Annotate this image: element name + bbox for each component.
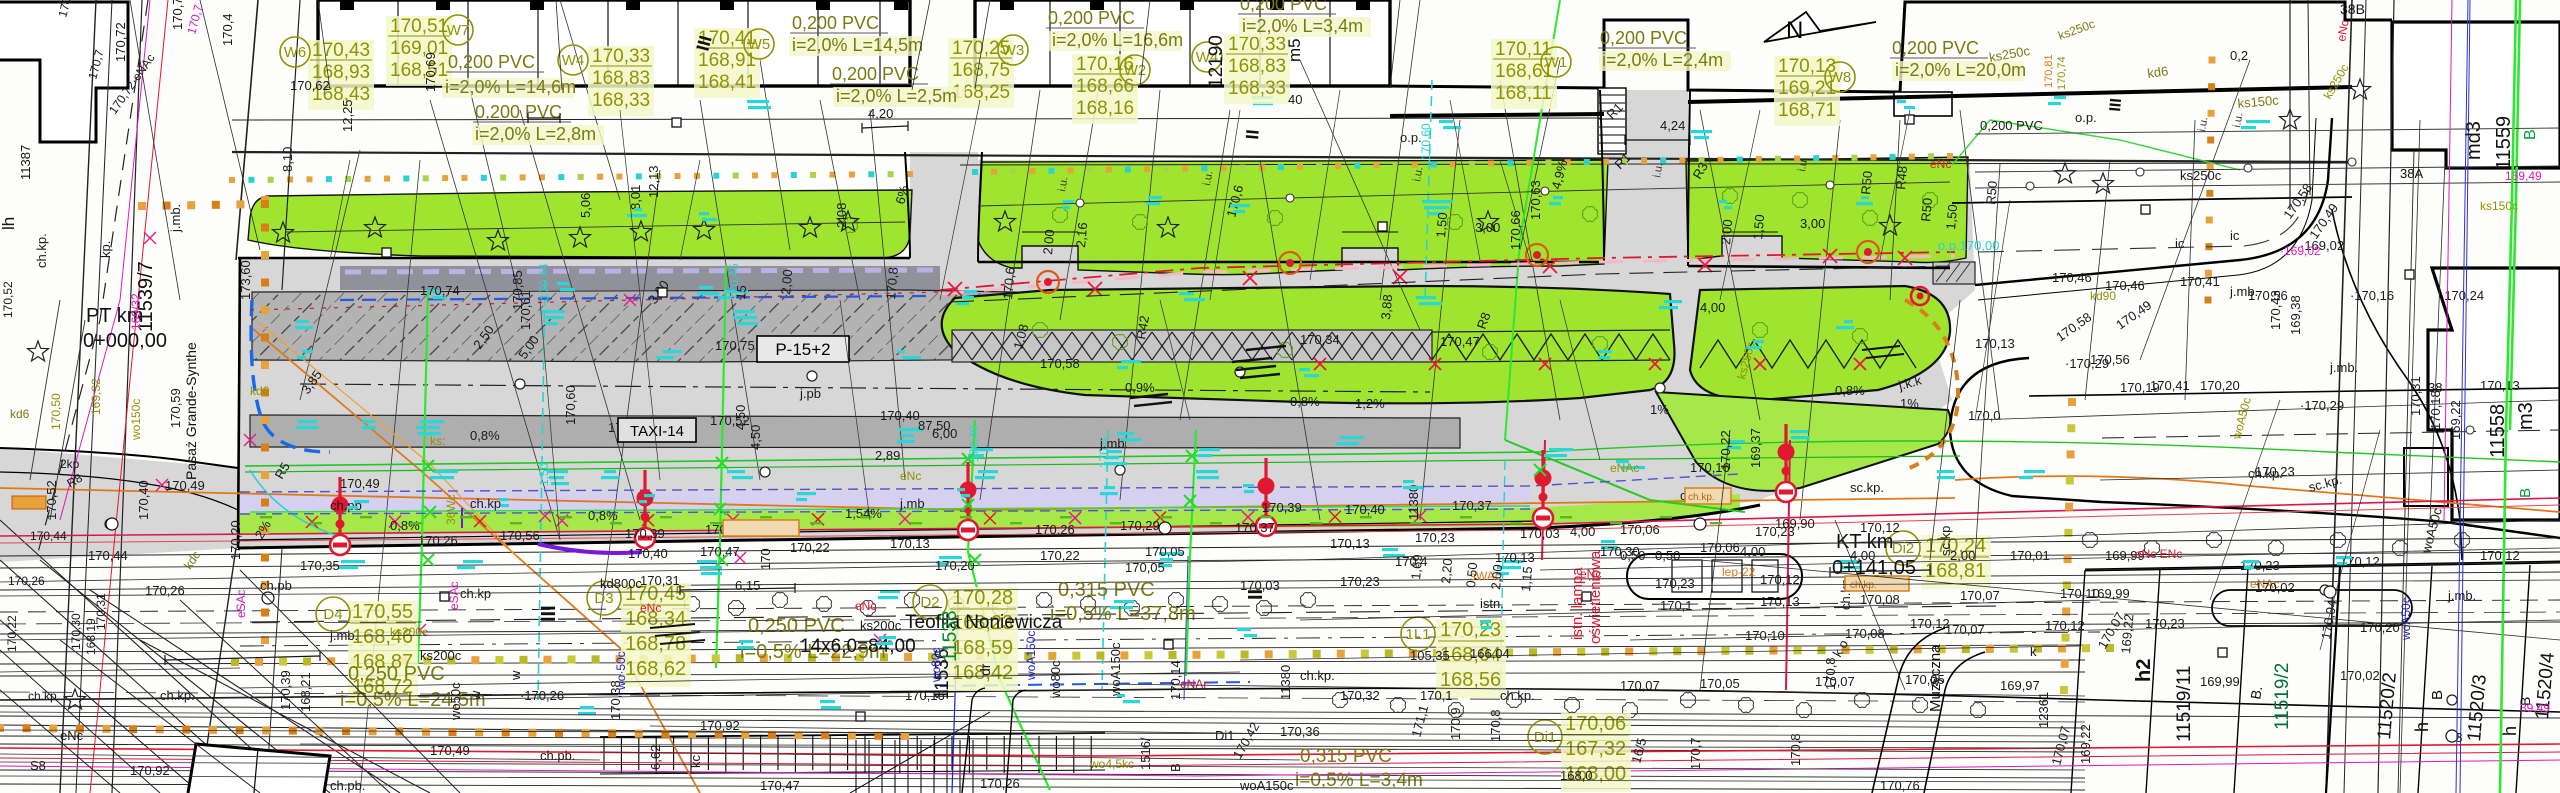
- svg-text:168,75: 168,75: [952, 60, 1010, 81]
- svg-text:eNc: eNc: [640, 601, 661, 615]
- svg-text:2,00: 2,00: [1040, 229, 1057, 256]
- svg-text:0,200 PVC: 0,200 PVC: [832, 64, 919, 84]
- svg-text:170,37: 170,37: [1235, 520, 1275, 535]
- svg-text:170,06: 170,06: [1565, 713, 1626, 735]
- svg-text:S8: S8: [30, 758, 46, 773]
- svg-text:h2: h2: [2133, 659, 2155, 682]
- svg-text:170,13: 170,13: [1330, 536, 1370, 551]
- svg-text:170,44: 170,44: [537, 263, 551, 300]
- svg-text:ch.kp: ch.kp: [460, 586, 491, 601]
- svg-text:Teofila Noniewicza: Teofila Noniewicza: [905, 612, 1063, 633]
- svg-text:169,99: 169,99: [2090, 586, 2130, 601]
- svg-text:170,63: 170,63: [1528, 180, 1543, 220]
- svg-text:kd6: kd6: [2146, 63, 2169, 81]
- svg-text:i=2,0% L=2,8m: i=2,0% L=2,8m: [475, 124, 596, 144]
- svg-text:0,200 PVC: 0,200 PVC: [448, 52, 535, 72]
- svg-text:II: II: [1242, 129, 1263, 141]
- svg-text:wo150c: wo150c: [129, 399, 143, 441]
- svg-text:B: B: [2517, 488, 2534, 498]
- svg-text:170,9: 170,9: [1448, 707, 1463, 740]
- svg-text:woA150c: woA150c: [1024, 631, 1038, 681]
- svg-text:0,200 PVC: 0,200 PVC: [1600, 28, 1687, 48]
- svg-text:170,49: 170,49: [430, 743, 470, 758]
- svg-text:·170,29: ·170,29: [2300, 398, 2344, 413]
- svg-text:h: h: [2500, 726, 2520, 736]
- svg-text:170,05: 170,05: [1145, 544, 1185, 559]
- svg-text:0,50: 0,50: [1620, 548, 1645, 563]
- svg-text:170,69: 170,69: [423, 52, 438, 92]
- svg-text:i=2,0% L=14,5m: i=2,0% L=14,5m: [792, 35, 923, 55]
- svg-text:i=2,0% L=14,6m: i=2,0% L=14,6m: [445, 77, 576, 97]
- svg-text:·170,29: ·170,29: [2065, 356, 2109, 371]
- svg-text:woA150c: woA150c: [1108, 642, 1123, 697]
- svg-text:170,31: 170,31: [640, 573, 680, 588]
- svg-text:kc: kc: [688, 755, 703, 769]
- svg-text:Pasaż Grande-Synthe: Pasaż Grande-Synthe: [183, 342, 199, 480]
- svg-text:170,32: 170,32: [1340, 688, 1380, 703]
- svg-text:170,26: 170,26: [980, 776, 1020, 791]
- svg-text:j.mb: j.mb: [899, 496, 925, 511]
- svg-text:170,23: 170,23: [1440, 619, 1501, 641]
- svg-text:169,38: 169,38: [2288, 295, 2303, 335]
- svg-text:Di2: Di2: [1892, 540, 1915, 557]
- svg-text:170,43: 170,43: [312, 40, 370, 61]
- svg-text:ks:: ks:: [430, 434, 445, 448]
- svg-text:170,39: 170,39: [625, 526, 665, 541]
- svg-text:170,40: 170,40: [880, 408, 920, 423]
- svg-text:i.u.: i.u.: [1651, 162, 1665, 179]
- svg-text:168,83: 168,83: [1228, 56, 1286, 77]
- svg-text:170,39: 170,39: [1262, 500, 1302, 515]
- svg-text:i.u.: i.u.: [2231, 112, 2245, 129]
- svg-text:ch.pb.: ch.pb.: [330, 778, 365, 793]
- svg-text:170,23: 170,23: [1655, 576, 1695, 591]
- svg-text:4,50: 4,50: [748, 425, 763, 450]
- svg-text:170,44: 170,44: [30, 529, 67, 543]
- svg-text:ch.pb: ch.pb: [260, 578, 292, 593]
- svg-text:lep-22: lep-22: [1722, 565, 1756, 579]
- svg-text:N: N: [1786, 17, 1803, 44]
- svg-text:wo4,5kc: wo4,5kc: [1089, 757, 1134, 771]
- svg-text:170,16: 170,16: [905, 688, 945, 703]
- svg-text:170,36: 170,36: [1280, 724, 1320, 739]
- svg-text:wo80c: wo80c: [929, 647, 943, 683]
- svg-text:169,99: 169,99: [2200, 674, 2240, 689]
- svg-text:170,12: 170,12: [1860, 520, 1900, 535]
- svg-text:0,9%: 0,9%: [1125, 380, 1155, 395]
- svg-text:k: k: [2030, 644, 2037, 659]
- svg-text:170,01: 170,01: [2010, 548, 2050, 563]
- svg-text:i.u.: i.u.: [1796, 156, 1810, 173]
- svg-text:0,315 PVC: 0,315 PVC: [1300, 746, 1392, 767]
- svg-text:j.mb.: j.mb.: [1099, 436, 1128, 451]
- svg-text:i.u.: i.u.: [1201, 170, 1215, 187]
- svg-text:170,02: 170,02: [2340, 668, 2380, 683]
- svg-text:170,8: 170,8: [883, 267, 901, 301]
- svg-text:169,97: 169,97: [2000, 678, 2040, 693]
- svg-text:ch.kp.: ch.kp.: [1500, 688, 1535, 703]
- svg-text:o.p.: o.p.: [2075, 110, 2097, 125]
- svg-text:168,91: 168,91: [698, 50, 756, 71]
- svg-text:170,37: 170,37: [1452, 498, 1492, 513]
- svg-text:11519/2: 11519/2: [2272, 663, 2293, 730]
- svg-text:·169,02: ·169,02: [2280, 244, 2321, 258]
- svg-text:170,92: 170,92: [130, 763, 170, 778]
- svg-text:kd6: kd6: [250, 384, 270, 398]
- svg-text:III: III: [2107, 98, 2125, 113]
- svg-text:170,41: 170,41: [2180, 274, 2220, 289]
- svg-text:170,85: 170,85: [510, 270, 525, 310]
- svg-text:0,50: 0,50: [1655, 548, 1680, 563]
- svg-text:1,50: 1,50: [1433, 212, 1450, 239]
- svg-text:170,59: 170,59: [168, 388, 183, 428]
- svg-text:12,13: 12,13: [646, 165, 661, 198]
- svg-text:0,250 PVC: 0,250 PVC: [348, 663, 445, 685]
- svg-text:o.p.: o.p.: [1400, 130, 1422, 145]
- svg-text:h: h: [2412, 722, 2432, 732]
- svg-text:168,51: 168,51: [390, 60, 448, 81]
- svg-text:169,32: 169,32: [89, 378, 103, 415]
- svg-text:170,8: 170,8: [1788, 733, 1803, 766]
- svg-text:j.mb.: j.mb.: [168, 204, 183, 233]
- svg-text:0,200 PVC: 0,200 PVC: [1980, 118, 2043, 133]
- svg-text:170,13: 170,13: [1975, 336, 2015, 351]
- svg-text:168,83: 168,83: [592, 68, 650, 89]
- svg-text:0,8%: 0,8%: [588, 508, 618, 523]
- svg-text:ch.kp: ch.kp: [470, 496, 501, 511]
- svg-text:6,62: 6,62: [648, 745, 663, 770]
- svg-text:B: B: [2429, 690, 2446, 700]
- svg-text:170,29: 170,29: [1120, 518, 1160, 533]
- svg-text:ch.kp.: ch.kp.: [1688, 492, 1715, 503]
- svg-text:m3: m3: [2515, 402, 2537, 430]
- svg-text:170,07: 170,07: [1945, 622, 1985, 637]
- svg-text:0,200 PVC: 0,200 PVC: [1892, 38, 1979, 58]
- svg-text:eNc: eNc: [855, 599, 876, 613]
- svg-text:D2: D2: [920, 594, 939, 611]
- svg-text:170,72·: 170,72·: [170, 0, 185, 30]
- svg-text:170,26: 170,26: [8, 574, 45, 588]
- svg-text:m5: m5: [1285, 38, 1304, 62]
- svg-text:170,19: 170,19: [2120, 380, 2160, 395]
- svg-text:R48: R48: [1893, 165, 1910, 190]
- svg-text:i.u.: i.u.: [1411, 166, 1425, 183]
- svg-text:170,26: 170,26: [145, 583, 185, 598]
- svg-text:170,52: 170,52: [1, 281, 15, 318]
- svg-text:eSAc: eSAc: [234, 589, 248, 618]
- svg-text:sc.kp: sc.kp: [1938, 526, 1953, 556]
- svg-text:170,13: 170,13: [890, 536, 930, 551]
- svg-text:eNc: eNc: [1930, 157, 1951, 171]
- svg-text:kd6: kd6: [10, 407, 30, 421]
- svg-text:0,315 PVC: 0,315 PVC: [1058, 579, 1155, 601]
- svg-text:170,40: 170,40: [1345, 502, 1385, 517]
- svg-text:4,00: 4,00: [1570, 524, 1595, 539]
- svg-text:170,74: 170,74: [2056, 56, 2068, 90]
- svg-text:1%: 1%: [1900, 396, 1919, 411]
- svg-text:R50: R50: [1918, 197, 1935, 222]
- svg-text:dr: dr: [977, 663, 993, 676]
- svg-text:0,8%: 0,8%: [390, 518, 420, 533]
- svg-text:12,25: 12,25: [340, 99, 355, 132]
- svg-text:170,60: 170,60: [563, 385, 578, 425]
- svg-text:11519/11: 11519/11: [2174, 666, 2195, 742]
- svg-text:105,35: 105,35: [1410, 648, 1450, 663]
- svg-text:·170,26: ·170,26: [520, 688, 564, 703]
- svg-text:170,7: 170,7: [1688, 737, 1703, 770]
- svg-text:170,8: 170,8: [1823, 657, 1838, 690]
- svg-text:eNc: eNc: [900, 469, 921, 483]
- svg-text:170,47: 170,47: [760, 778, 800, 793]
- svg-text:i=2,0% L=3,4m: i=2,0% L=3,4m: [1242, 16, 1363, 36]
- svg-text:170,56: 170,56: [500, 528, 540, 543]
- svg-text:kd90: kd90: [2090, 289, 2116, 303]
- svg-text:0,250 PVC: 0,250 PVC: [748, 615, 845, 637]
- svg-text:170,1: 170,1: [1420, 688, 1453, 703]
- svg-text:·170,24: ·170,24: [2440, 288, 2484, 303]
- svg-text:ic: ic: [2230, 228, 2240, 243]
- svg-text:168,81: 168,81: [1925, 560, 1986, 582]
- svg-text:1,54%: 1,54%: [845, 506, 882, 521]
- svg-text:170,46: 170,46: [2052, 270, 2092, 285]
- svg-text:i=0,5% L=37,8m: i=0,5% L=37,8m: [1050, 603, 1196, 625]
- svg-text:kd800c: kd800c: [600, 576, 642, 591]
- svg-text:8,10: 8,10: [280, 147, 295, 172]
- svg-text:o.p.170,00: o.p.170,00: [1938, 238, 1999, 253]
- svg-text:170,35: 170,35: [300, 558, 340, 573]
- svg-text:170,23: 170,23: [1755, 524, 1795, 539]
- svg-text:170,22: 170,22: [5, 615, 19, 652]
- svg-text:4,00: 4,00: [1850, 548, 1875, 563]
- svg-text:170,13: 170,13: [1760, 594, 1800, 609]
- svg-text:15: 15: [733, 285, 749, 301]
- svg-text:0,8%: 0,8%: [470, 428, 500, 443]
- svg-text:168,61: 168,61: [1495, 61, 1553, 82]
- svg-text:169,37: 169,37: [1748, 428, 1763, 468]
- svg-text:w: w: [508, 670, 523, 681]
- svg-text:170,56: 170,56: [2248, 288, 2288, 303]
- svg-text:wo50c: wo50c: [448, 682, 463, 721]
- svg-text:P-15+2: P-15+2: [775, 340, 830, 359]
- svg-text:i.u.: i.u.: [1056, 176, 1070, 193]
- svg-text:2,08: 2,08: [834, 203, 849, 228]
- svg-text:38A: 38A: [2400, 166, 2423, 181]
- svg-text:170,34: 170,34: [1300, 332, 1340, 347]
- svg-text:4,24: 4,24: [1660, 118, 1685, 133]
- svg-text:0,2: 0,2: [2230, 48, 2248, 63]
- svg-text:1,69: 1,69: [1408, 554, 1425, 581]
- svg-text:B: B: [2522, 129, 2539, 140]
- svg-text:4,20: 4,20: [868, 106, 893, 121]
- svg-text:170,07: 170,07: [1960, 588, 2000, 603]
- svg-text:170,13: 170,13: [1778, 56, 1836, 77]
- svg-text:170,62: 170,62: [290, 78, 330, 93]
- svg-text:3,00: 3,00: [1800, 216, 1825, 231]
- svg-text:170,22: 170,22: [790, 540, 830, 555]
- svg-text:D4: D4: [323, 606, 342, 623]
- svg-text:170,76: 170,76: [1880, 778, 1920, 793]
- svg-text:170,40: 170,40: [967, 425, 981, 462]
- svg-text:168,16: 168,16: [1076, 98, 1134, 119]
- svg-text:2,89: 2,89: [875, 448, 900, 463]
- svg-text:11380: 11380: [1406, 485, 1421, 520]
- svg-text:1,50: 1,50: [1750, 214, 1767, 241]
- svg-text:2kp: 2kp: [60, 457, 80, 471]
- svg-text:kp.: kp.: [98, 241, 113, 258]
- svg-text:170,22: 170,22: [1718, 430, 1733, 470]
- svg-text:1,2%: 1,2%: [1355, 396, 1385, 411]
- svg-text:170,8: 170,8: [1488, 709, 1503, 742]
- svg-text:168,33: 168,33: [592, 90, 650, 111]
- svg-text:0,8%: 0,8%: [1835, 383, 1865, 398]
- svg-text:ch.kp.: ch.kp.: [160, 688, 195, 703]
- svg-text:170,55: 170,55: [352, 601, 413, 623]
- svg-text:170,58: 170,58: [1040, 356, 1080, 371]
- svg-text:W7: W7: [447, 22, 470, 39]
- svg-text:170,31: 170,31: [2408, 376, 2423, 416]
- svg-text:ch.kp.: ch.kp.: [28, 689, 60, 703]
- svg-text:B.: B.: [2247, 685, 2265, 701]
- svg-text:i=2,0% L=20,0m: i=2,0% L=20,0m: [1895, 60, 2026, 80]
- svg-text:170,81: 170,81: [2043, 54, 2055, 88]
- svg-text:170,33: 170,33: [592, 46, 650, 67]
- svg-text:lh: lh: [0, 217, 18, 230]
- svg-text:168,11: 168,11: [1495, 83, 1552, 104]
- svg-text:0,50: 0,50: [1463, 562, 1480, 589]
- svg-text:173,60: 173,60: [238, 260, 253, 300]
- svg-text:170,72: 170,72: [113, 22, 128, 62]
- svg-text:2,00: 2,00: [778, 269, 795, 296]
- svg-text:ks200c: ks200c: [390, 625, 428, 639]
- svg-text:170,44: 170,44: [88, 548, 128, 563]
- svg-text:11538: 11538: [940, 611, 961, 662]
- svg-text:w: w: [1929, 674, 1940, 689]
- svg-text:169,49: 169,49: [2505, 169, 2542, 183]
- svg-text:170,49: 170,49: [340, 476, 380, 491]
- svg-text:2,20: 2,20: [1438, 558, 1455, 585]
- svg-text:170,47: 170,47: [1440, 334, 1480, 349]
- svg-text:170,03: 170,03: [1240, 578, 1280, 593]
- svg-text:i=2,0% L=2,5m: i=2,0% L=2,5m: [836, 86, 957, 106]
- svg-text:170,06: 170,06: [1620, 522, 1660, 537]
- svg-text:170,33: 170,33: [1228, 34, 1286, 55]
- svg-text:38B: 38B: [2340, 1, 2365, 17]
- svg-text:168,62: 168,62: [625, 658, 686, 680]
- svg-text:12361: 12361: [2036, 692, 2051, 728]
- svg-text:2,16: 2,16: [1073, 222, 1090, 249]
- svg-text:11380: 11380: [1278, 665, 1293, 700]
- svg-text:169,01: 169,01: [390, 38, 448, 59]
- svg-text:170,20: 170,20: [2200, 378, 2240, 393]
- svg-text:170,05: 170,05: [1700, 676, 1740, 691]
- svg-text:170,12: 170,12: [2480, 548, 2520, 563]
- svg-text:j.mb.: j.mb.: [2447, 588, 2476, 603]
- svg-text:Di1: Di1: [1534, 729, 1557, 746]
- svg-text:1516/: 1516/: [1138, 737, 1153, 770]
- svg-text:0+000,00: 0+000,00: [83, 330, 167, 352]
- svg-text:170,6: 170,6: [1000, 267, 1018, 301]
- svg-text:167,32: 167,32: [1565, 738, 1626, 760]
- svg-text:36Wc: 36Wc: [444, 494, 458, 525]
- svg-text:ch.kp.: ch.kp.: [34, 233, 49, 268]
- svg-text:170,50: 170,50: [49, 393, 63, 430]
- svg-text:j.mb.: j.mb.: [329, 628, 358, 643]
- svg-text:170,10: 170,10: [1745, 628, 1785, 643]
- svg-text:W6: W6: [284, 44, 307, 61]
- svg-text:170,26: 170,26: [418, 533, 458, 548]
- svg-text:TAXI-14: TAXI-14: [630, 423, 684, 440]
- svg-text:0,8%: 0,8%: [1290, 394, 1320, 409]
- svg-text:170,08: 170,08: [1845, 626, 1885, 641]
- svg-text:0,200 PVC: 0,200 PVC: [1240, 0, 1327, 14]
- svg-text:6,15: 6,15: [735, 578, 760, 593]
- svg-text:170,20: 170,20: [228, 520, 243, 560]
- svg-text:169/32: 169/32: [129, 293, 143, 330]
- svg-text:14x6,0=84,00: 14x6,0=84,00: [800, 636, 916, 657]
- svg-text:170,30: 170,30: [69, 613, 83, 650]
- svg-text:170,03: 170,03: [1520, 526, 1560, 541]
- svg-text:·170,16: ·170,16: [2350, 288, 2394, 303]
- svg-text:170,23: 170,23: [1340, 574, 1380, 589]
- svg-text:170,11: 170,11: [1495, 39, 1552, 60]
- svg-text:0,200 PVC: 0,200 PVC: [1048, 8, 1135, 28]
- svg-text:j.mb.: j.mb.: [2329, 360, 2358, 375]
- svg-text:170,49: 170,49: [165, 478, 205, 493]
- svg-text:eNc ENc: eNc ENc: [2135, 547, 2182, 561]
- svg-text:1L1: 1L1: [1405, 626, 1430, 643]
- svg-text:j.pb: j.pb: [799, 386, 821, 401]
- svg-text:168,41: 168,41: [698, 72, 756, 93]
- svg-text:1%: 1%: [1650, 402, 1669, 417]
- svg-text:40: 40: [1288, 92, 1302, 107]
- svg-text:170,92: 170,92: [700, 718, 740, 733]
- svg-text:woA150c: woA150c: [1239, 778, 1294, 793]
- svg-text:ks200c: ks200c: [420, 648, 462, 663]
- svg-text:169,22: 169,22: [2448, 400, 2463, 440]
- svg-text:170,51: 170,51: [390, 16, 448, 37]
- svg-text:ch.pb.: ch.pb.: [540, 748, 575, 763]
- svg-text:170,4: 170,4: [220, 13, 235, 46]
- svg-text:4,00: 4,00: [1700, 300, 1725, 315]
- svg-text:170,13: 170,13: [2480, 378, 2520, 393]
- svg-text:170,16: 170,16: [1076, 54, 1134, 75]
- svg-text:169,22: 169,22: [2078, 724, 2093, 764]
- svg-text:170,74: 170,74: [420, 283, 460, 298]
- svg-text:i=2,0% L=2,4m: i=2,0% L=2,4m: [1602, 50, 1723, 70]
- svg-text:ch.kp.: ch.kp.: [1300, 668, 1335, 683]
- svg-text:1,15: 1,15: [1518, 566, 1535, 593]
- svg-text:0,200 PVC: 0,200 PVC: [475, 102, 562, 122]
- svg-text:39,49: 39,49: [2520, 701, 2550, 715]
- svg-text:169,21: 169,21: [1778, 78, 1836, 99]
- svg-text:170: 170: [758, 548, 773, 570]
- svg-text:166,04: 166,04: [1470, 646, 1510, 661]
- svg-text:3,88: 3,88: [1378, 294, 1395, 321]
- svg-text:170,40: 170,40: [136, 480, 151, 520]
- svg-text:170,13: 170,13: [1495, 550, 1535, 565]
- svg-text:168,21: 168,21: [298, 672, 313, 712]
- svg-text:168,71: 168,71: [1778, 100, 1836, 121]
- svg-text:170,25: 170,25: [952, 38, 1010, 59]
- svg-text:3,00: 3,00: [1475, 220, 1500, 235]
- svg-text:eNAc: eNAc: [1610, 461, 1639, 475]
- svg-text:12190: 12190: [1206, 35, 1227, 88]
- svg-text:wo·50c: wo·50c: [614, 651, 628, 691]
- svg-text:170,39: 170,39: [278, 670, 293, 710]
- svg-text:sc.kp.: sc.kp.: [1850, 480, 1884, 495]
- svg-text:11387: 11387: [18, 145, 33, 180]
- svg-text:170,75: 170,75: [715, 338, 755, 353]
